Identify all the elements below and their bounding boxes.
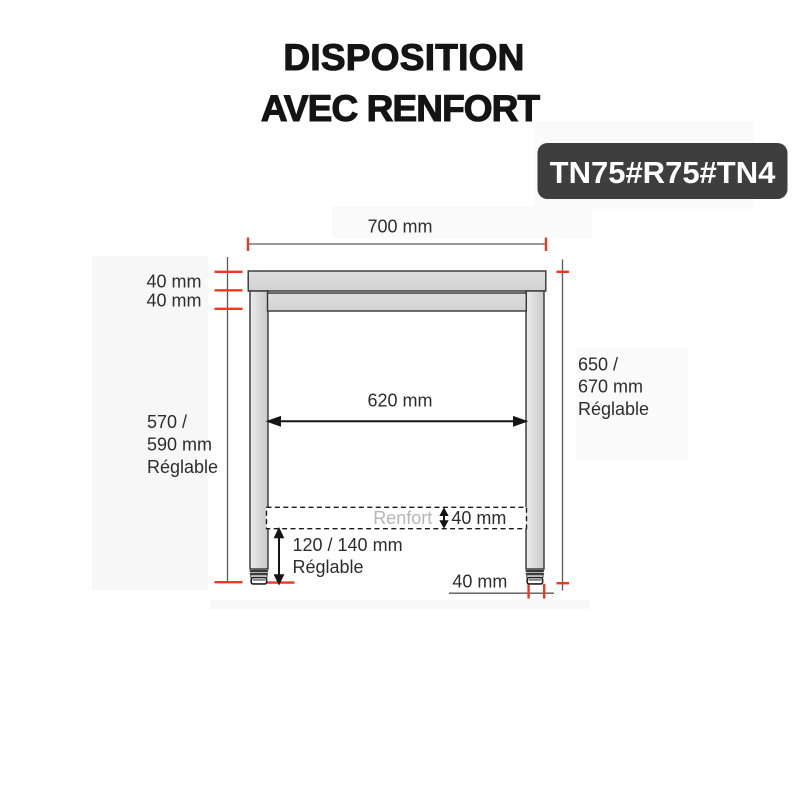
svg-text:40 mm: 40 mm: [147, 272, 202, 292]
svg-text:Réglable: Réglable: [147, 457, 218, 477]
svg-text:DISPOSITION: DISPOSITION: [283, 37, 524, 78]
svg-text:Réglable: Réglable: [578, 399, 649, 419]
svg-text:40 mm: 40 mm: [451, 508, 506, 528]
svg-text:570 /: 570 /: [147, 412, 187, 432]
svg-text:590 mm: 590 mm: [147, 435, 212, 455]
svg-text:670 mm: 670 mm: [578, 377, 643, 397]
svg-text:40 mm: 40 mm: [147, 291, 202, 311]
svg-text:40 mm: 40 mm: [452, 572, 507, 592]
svg-text:700 mm: 700 mm: [367, 217, 432, 237]
svg-text:AVEC RENFORT: AVEC RENFORT: [261, 88, 541, 129]
svg-text:650 /: 650 /: [578, 354, 618, 374]
svg-text:Renfort: Renfort: [373, 508, 432, 528]
svg-text:120 / 140 mm: 120 / 140 mm: [293, 535, 403, 555]
svg-text:Réglable: Réglable: [293, 557, 364, 577]
svg-text:620 mm: 620 mm: [367, 391, 432, 411]
svg-text:TN75#R75#TN4: TN75#R75#TN4: [550, 155, 776, 190]
